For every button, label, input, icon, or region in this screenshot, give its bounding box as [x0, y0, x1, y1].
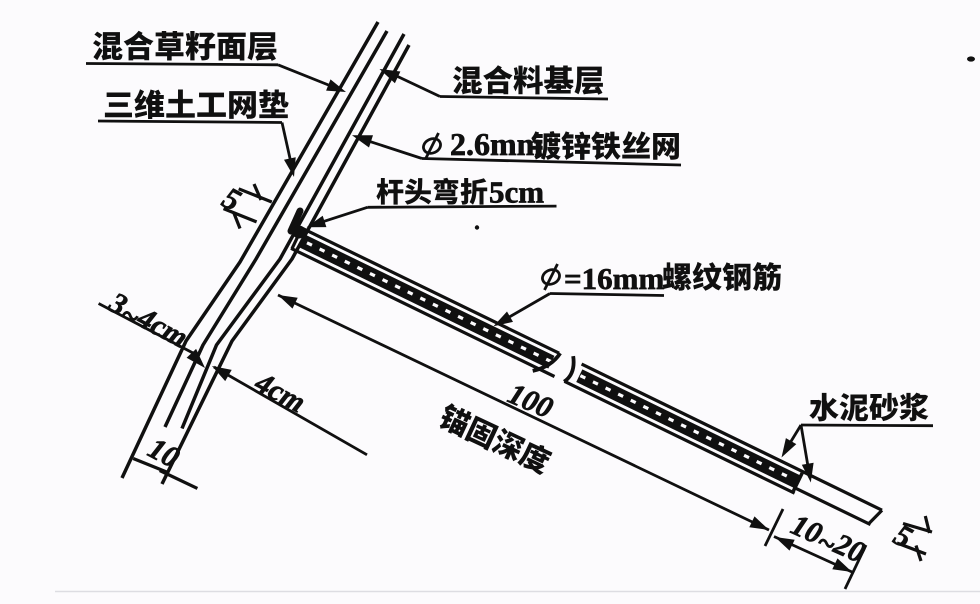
- svg-text:2.6mm: 2.6mm: [450, 126, 544, 162]
- svg-text:=16mm: =16mm: [564, 261, 664, 296]
- svg-text:5cm: 5cm: [489, 175, 544, 210]
